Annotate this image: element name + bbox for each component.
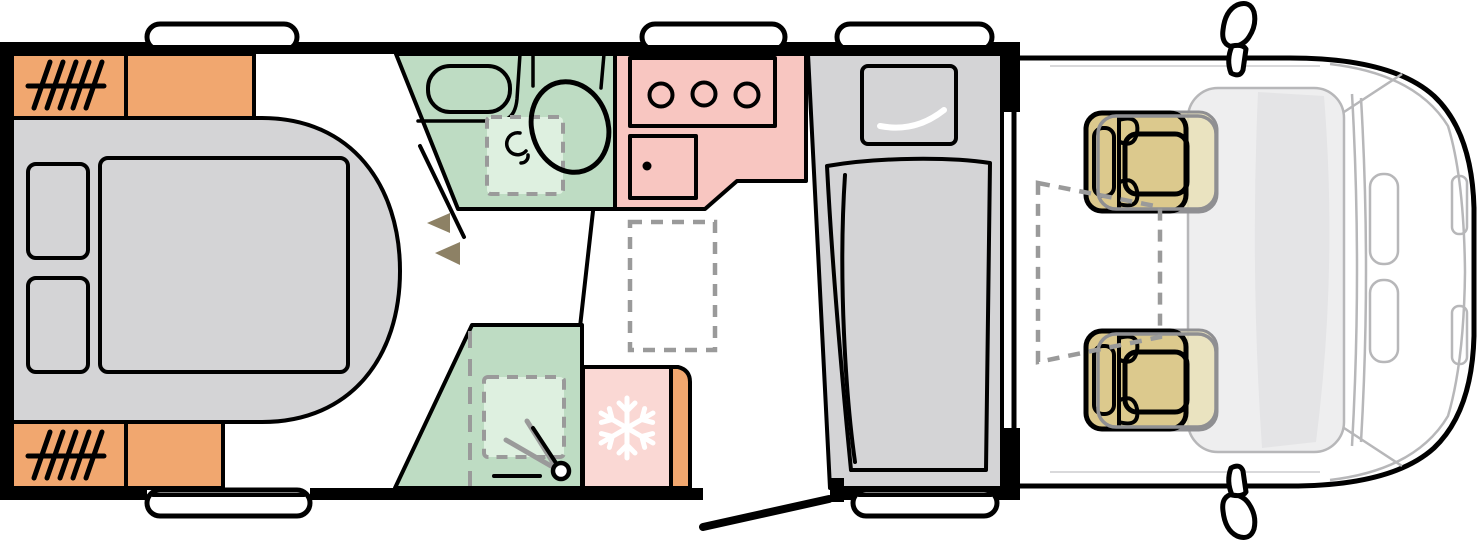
lounge-bench — [808, 54, 1002, 488]
cab-seat-driver — [1085, 330, 1217, 430]
pillow-right — [28, 278, 88, 372]
sink-drain — [643, 162, 652, 171]
kitchen — [580, 54, 806, 327]
bathroom — [396, 54, 620, 265]
door-swing-arrow-icon — [435, 242, 460, 265]
washbasin — [428, 66, 510, 112]
cab — [1014, 4, 1474, 538]
door-swing-arrow-icon — [427, 213, 450, 233]
mattress — [100, 158, 348, 372]
bedroom — [12, 54, 400, 488]
entry-door-line — [703, 499, 829, 527]
shower-room — [395, 325, 582, 488]
shower-tray-dashed — [484, 377, 564, 457]
bench-cushion — [862, 66, 956, 144]
fridge-side-cabinet — [671, 367, 690, 488]
bathroom-tray-dashed — [487, 117, 563, 194]
fridge — [583, 367, 690, 488]
floorplan-canvas — [0, 0, 1481, 541]
motorhome-floorplan — [0, 0, 1481, 541]
pillow-left — [28, 164, 88, 258]
hallway-dashed-outline — [630, 222, 715, 350]
kitchen-sink — [630, 136, 696, 198]
hallway-partition — [580, 211, 593, 327]
windshield-shade — [1255, 92, 1330, 448]
